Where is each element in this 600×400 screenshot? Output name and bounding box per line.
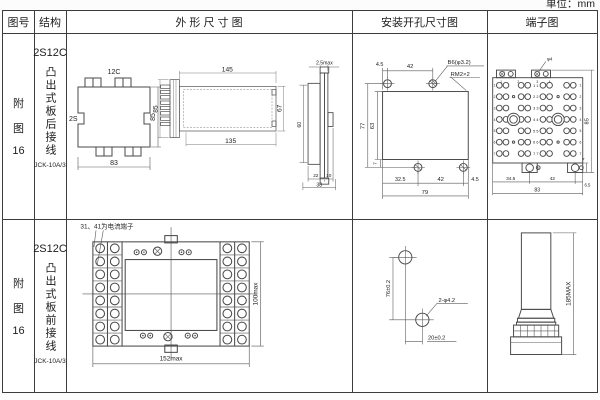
terminal-cell-row2: 185MAX [487, 219, 597, 392]
outline-cell-row2: 31、41为电流端子 [66, 219, 352, 392]
header-fig-no: 图号 [3, 11, 34, 33]
svg-text:6 6: 6 6 [533, 141, 538, 145]
mounting-holes-drawing: 76±0.2 20±0.2 2-φ4.2 [353, 227, 486, 388]
dim-inner-height: 67 [276, 104, 283, 112]
catalog-page: 单位：mm 图号 结构 外 形 尺 寸 图 安装开孔尺寸图 端子图 附 图 16… [0, 0, 600, 400]
svg-text:4: 4 [494, 118, 496, 122]
svg-text:1: 1 [579, 84, 581, 88]
hole-label: φ4 [547, 57, 553, 63]
dim-width: 152max [160, 356, 184, 363]
svg-text:4: 4 [579, 118, 581, 122]
svg-text:6: 6 [494, 141, 496, 145]
svg-text:7: 7 [494, 152, 496, 156]
structure-row1: 2S12C 凸出式板后接线 JCK-10A/3 [34, 33, 66, 233]
dim-bottom3: 4.5 [471, 177, 479, 183]
dim-top2: 42 [407, 64, 414, 70]
model-label: 2S12C [33, 243, 67, 255]
thread-spec-label: RM2×2 [451, 72, 470, 78]
dim-thickness: 2.5max [316, 60, 333, 66]
profile-view-drawing: 2.5max 60 22 10 38 [296, 59, 352, 193]
side-silhouette-drawing: 185MAX [490, 223, 593, 385]
structure-type-label: 凸出式板后接线 [42, 66, 58, 157]
structure-row2: 2S12C 凸出式板前接线 JCK-10A/3 [34, 219, 66, 400]
dim-height: 85 [152, 105, 159, 113]
hole-spec-label: B6(φ3.2) [448, 60, 471, 66]
mounting-holes-drawing: B6(φ3.2) RM2×2 4.5 42 77 63 7 32.5 42 4.… [353, 45, 486, 208]
front-view-drawing: 31、41为电流端子 [80, 221, 284, 393]
dim-height-inner: 63 [370, 122, 376, 129]
svg-text:7: 7 [579, 152, 581, 156]
svg-text:2: 2 [517, 80, 519, 84]
fig-char: 附 [13, 95, 24, 111]
terminal-diagram-drawing: φ4 1 2 3 4 1 2 [487, 53, 596, 200]
label-12c: 12C [108, 69, 121, 76]
svg-text:2 2: 2 2 [533, 95, 538, 99]
dim-height: 60 [297, 122, 303, 128]
dimension-lines [158, 71, 285, 146]
dimension-lines [78, 87, 161, 170]
relay-silhouette [511, 233, 562, 355]
dim-height-outer: 77 [360, 123, 366, 130]
svg-text:2: 2 [494, 95, 496, 99]
dim-bottom2: 42 [437, 177, 444, 183]
fig-number-row1: 附 图 16 [3, 33, 34, 219]
svg-text:5 5: 5 5 [533, 129, 538, 133]
table-frame: 图号 结构 外 形 尺 寸 图 安装开孔尺寸图 端子图 附 图 16 2S12C… [2, 10, 598, 393]
outline-cell-row1: 12C 2S 85 83 [66, 33, 352, 219]
fig-char: 图 [13, 120, 24, 136]
svg-text:3: 3 [579, 106, 581, 110]
structure-type-label: 凸出式板前接线 [42, 262, 58, 353]
dim-tab-height: 4 [582, 158, 586, 160]
relay-top-outline [78, 78, 150, 156]
model-label: 2S12C [33, 47, 67, 59]
dim-depth2: 10 [326, 173, 332, 179]
dim-length-bottom: 135 [225, 138, 236, 145]
dim-bottom-total: 79 [422, 190, 429, 196]
svg-text:1: 1 [494, 84, 496, 88]
svg-text:7 7: 7 7 [533, 152, 538, 156]
terminal-pair-numbers: 1 1 2 2 3 3 4 4 5 5 6 6 7 7 [533, 84, 538, 156]
dimension-lines [299, 65, 339, 190]
dim-vertical: 76±0.2 [386, 280, 392, 297]
dim-bottom-total: 83 [534, 187, 540, 193]
dim-width: 83 [110, 160, 118, 167]
dim-length-top: 145 [222, 67, 233, 74]
svg-text:5: 5 [579, 129, 581, 133]
current-terminal-note: 31、41为电流端子 [80, 221, 134, 230]
fig-char: 16 [12, 325, 24, 337]
svg-text:4 4: 4 4 [533, 118, 538, 122]
product-code: JCK-10A/3 [34, 162, 65, 169]
profile-outline [308, 67, 333, 184]
svg-text:6: 6 [579, 141, 581, 145]
svg-text:5: 5 [494, 129, 496, 133]
dim-bottom2: 42 [550, 176, 556, 182]
fig-char: 附 [13, 275, 24, 291]
fig-number-row2: 附 图 16 [3, 219, 34, 392]
dim-height: 185MAX [565, 281, 572, 306]
dimension-lines [93, 242, 264, 367]
header-terminal: 端子图 [487, 11, 597, 33]
leader-line [539, 62, 546, 71]
cutout-rect [383, 92, 469, 160]
mounting-cell-row2: 76±0.2 20±0.2 2-φ4.2 [352, 219, 487, 392]
label-2s: 2S [69, 116, 78, 123]
dim-top1: 4.5 [376, 62, 384, 68]
svg-text:1 1: 1 1 [533, 84, 538, 88]
svg-text:2: 2 [579, 95, 581, 99]
dim-depth1: 22 [313, 173, 319, 179]
dim-bottom3: 6.5 [585, 183, 592, 188]
svg-text:1: 1 [500, 80, 502, 84]
header-structure: 结构 [34, 11, 66, 33]
product-code: JCK-10A/3 [34, 358, 65, 365]
header-outline: 外 形 尺 寸 图 [66, 11, 352, 33]
fig-char: 图 [13, 300, 24, 316]
dim-horizontal: 20±0.2 [428, 336, 445, 342]
dim-height: 85 [584, 118, 590, 124]
terminal-cell-row1: φ4 1 2 3 4 1 2 [487, 33, 597, 219]
svg-text:3: 3 [494, 106, 496, 110]
svg-text:3 3: 3 3 [533, 107, 538, 111]
dim-offset: 7 [373, 162, 379, 165]
hole-spec-label: 2-φ4.2 [438, 298, 455, 304]
pin-comb [161, 85, 170, 126]
dimension-lines [389, 257, 468, 344]
header-mounting: 安装开孔尺寸图 [352, 11, 487, 33]
dim-depth-total: 38 [316, 182, 322, 188]
side-view-drawing: 145 85 135 67 [150, 63, 290, 163]
dim-height: 100max [253, 282, 260, 306]
fig-char: 16 [12, 145, 24, 157]
relay-side-outline [170, 80, 276, 138]
mounting-cell-row1: B6(φ3.2) RM2×2 4.5 42 77 63 7 32.5 42 4.… [352, 33, 487, 219]
dim-bottom1: 34.5 [506, 176, 516, 182]
dim-bottom1: 32.5 [395, 177, 406, 183]
svg-text:4: 4 [549, 80, 551, 84]
